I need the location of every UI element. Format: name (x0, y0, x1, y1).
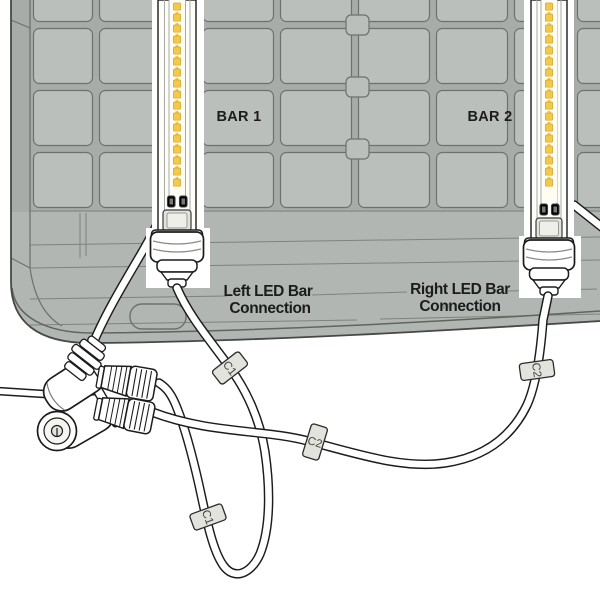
led-chip (173, 14, 180, 21)
led-chip (545, 80, 552, 87)
grid-cell (281, 0, 352, 22)
led-chip (545, 25, 552, 32)
led-chip (545, 58, 552, 65)
led-chip (545, 3, 552, 10)
grid-cell (359, 29, 430, 84)
led-chip (545, 113, 552, 120)
bar1-end-block-inner (167, 213, 187, 228)
led-chip (173, 25, 180, 32)
cable-tag-c2-right: C2 (519, 359, 555, 381)
led-chip (173, 69, 180, 76)
led-chip (545, 14, 552, 21)
led-chip (545, 91, 552, 98)
grid-cell (437, 29, 508, 84)
led-chip (545, 168, 552, 175)
grid-cell (359, 153, 430, 208)
led-chip (545, 36, 552, 43)
bar2-end-block-inner (540, 221, 559, 236)
led-chip (545, 179, 552, 186)
led-chip (173, 146, 180, 153)
grid-cell (34, 91, 93, 146)
cable-tag-c2-left: C2 (302, 423, 328, 460)
grid-cell (359, 91, 430, 146)
grid-cell (578, 0, 600, 22)
left-connection-label-line2: Connection (229, 300, 310, 317)
led-chip (173, 36, 180, 43)
led-bar-1 (146, 0, 210, 288)
bar1-label: BAR 1 (216, 109, 261, 125)
cable-tag-c1-lower: C1 (189, 503, 227, 531)
panel-grid-cells (34, 0, 600, 208)
led-chip (173, 102, 180, 109)
led-chip (173, 91, 180, 98)
led-chip (545, 69, 552, 76)
bar2-label: BAR 2 (467, 109, 512, 125)
led-chip (173, 124, 180, 131)
grid-cell (34, 153, 93, 208)
led-chip (173, 135, 180, 142)
right-connection-label-line1: Right LED Bar (410, 281, 510, 298)
grid-cell (34, 29, 93, 84)
grid-cell (281, 153, 352, 208)
led-chip (545, 135, 552, 142)
bar2-leds (545, 3, 552, 186)
left-connection-label-line1: Left LED Bar (223, 283, 312, 300)
led-chip (545, 124, 552, 131)
led-chip (545, 47, 552, 54)
led-chip (173, 113, 180, 120)
led-chip (173, 179, 180, 186)
led-chip (173, 168, 180, 175)
grid-cell (203, 153, 274, 208)
grid-cell (578, 153, 600, 208)
grid-cell (34, 0, 93, 22)
led-chip (545, 146, 552, 153)
grid-cell (281, 29, 352, 84)
led-bar-2 (519, 0, 581, 298)
grid-cell (437, 153, 508, 208)
led-bar-wiring-diagram: C1 C1 C2 C2 BAR 1 BAR 2 Left LED Bar Con… (0, 0, 600, 600)
grid-cell (578, 91, 600, 146)
led-chip (545, 157, 552, 164)
led-chip (173, 47, 180, 54)
led-chip (173, 157, 180, 164)
cable-tag-label: C2 (529, 362, 543, 378)
diagram-canvas: C1 C1 C2 C2 BAR 1 BAR 2 Left LED Bar Con… (0, 0, 600, 600)
grid-cell (203, 29, 274, 84)
led-chip (545, 102, 552, 109)
grid-cell (578, 29, 600, 84)
right-connection-label-line2: Connection (419, 298, 500, 315)
grid-cell (203, 0, 274, 22)
bar1-leds (173, 3, 180, 186)
grid-cell (281, 91, 352, 146)
led-chip (173, 3, 180, 10)
grid-cell (437, 0, 508, 22)
socket-end-face (38, 412, 77, 451)
led-chip (173, 80, 180, 87)
connector-cluster (36, 331, 158, 457)
led-chip (173, 58, 180, 65)
